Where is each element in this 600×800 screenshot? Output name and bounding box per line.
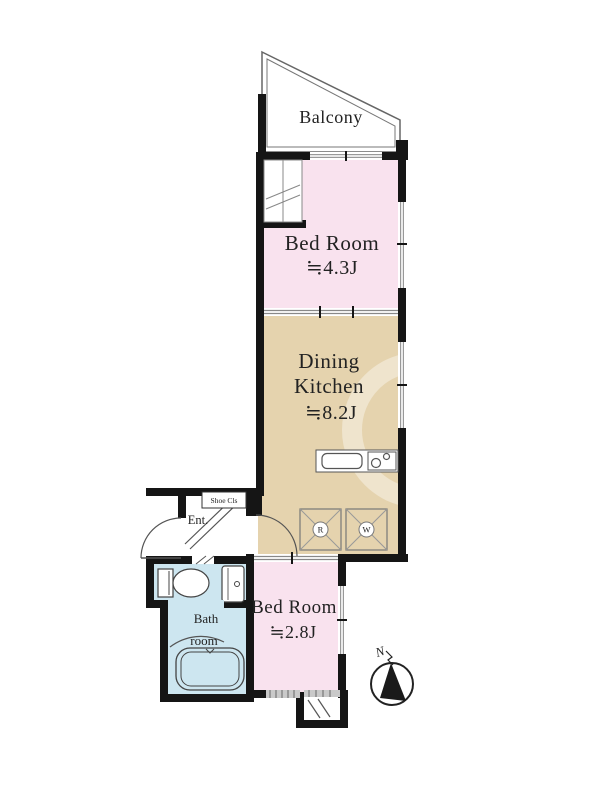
- wall: [246, 554, 254, 702]
- bedroom1-label: Bed Room: [285, 231, 379, 255]
- floor-plan-page: Bed Room ≒4.3J Dining Kitchen ≒8.2J R: [0, 0, 600, 800]
- balcony-window: [310, 151, 382, 161]
- service-nook: [308, 699, 330, 718]
- closet: [264, 160, 302, 222]
- dining-kitchen-window: [397, 342, 407, 428]
- bedroom2-label: Bed Room: [251, 597, 337, 618]
- compass: N: [371, 643, 413, 705]
- kitchen-counter: [316, 450, 398, 472]
- louver-window: [266, 690, 300, 698]
- dk-label-2: Kitchen: [294, 374, 364, 398]
- wall: [256, 152, 264, 496]
- wall: [160, 694, 254, 702]
- louver-window: [304, 690, 340, 697]
- bedroom2-window: [337, 586, 347, 654]
- wall: [398, 288, 406, 342]
- balcony-label: Balcony: [299, 107, 363, 127]
- wall: [258, 94, 266, 154]
- shoe-closet-label: Shoe Cls: [211, 496, 238, 505]
- wall: [246, 488, 262, 516]
- compass-north-label: N: [372, 643, 387, 661]
- entrance-door-swing: [141, 518, 181, 558]
- wall: [160, 600, 168, 702]
- wall: [340, 690, 348, 728]
- washer-mark: W: [362, 525, 370, 535]
- wall: [246, 690, 268, 698]
- wall: [398, 428, 406, 562]
- dk-size: ≒8.2J: [305, 402, 357, 424]
- shoe-closet: Shoe Cls: [202, 492, 246, 508]
- dk-label-1: Dining: [298, 349, 359, 373]
- wall: [178, 496, 186, 518]
- floor-plan: Bed Room ≒4.3J Dining Kitchen ≒8.2J R: [0, 0, 600, 800]
- wall: [396, 140, 408, 154]
- washbasin: [222, 566, 244, 602]
- wall: [338, 554, 346, 586]
- bedroom2-size: ≒2.8J: [269, 622, 316, 642]
- wall: [338, 554, 408, 562]
- bathroom-label-1: Bath: [194, 611, 219, 626]
- kitchen-sink: [322, 454, 362, 469]
- toilet-fixture: [158, 569, 209, 597]
- bathroom-label-2: room: [190, 633, 217, 648]
- bedroom1-size: ≒4.3J: [306, 257, 358, 279]
- bedroom1-window: [397, 202, 407, 288]
- wall: [398, 152, 406, 202]
- entrance-label: Ent.: [188, 513, 208, 527]
- entrance: Ent. Shoe Cls: [141, 492, 246, 558]
- refrigerator-mark: R: [318, 525, 324, 535]
